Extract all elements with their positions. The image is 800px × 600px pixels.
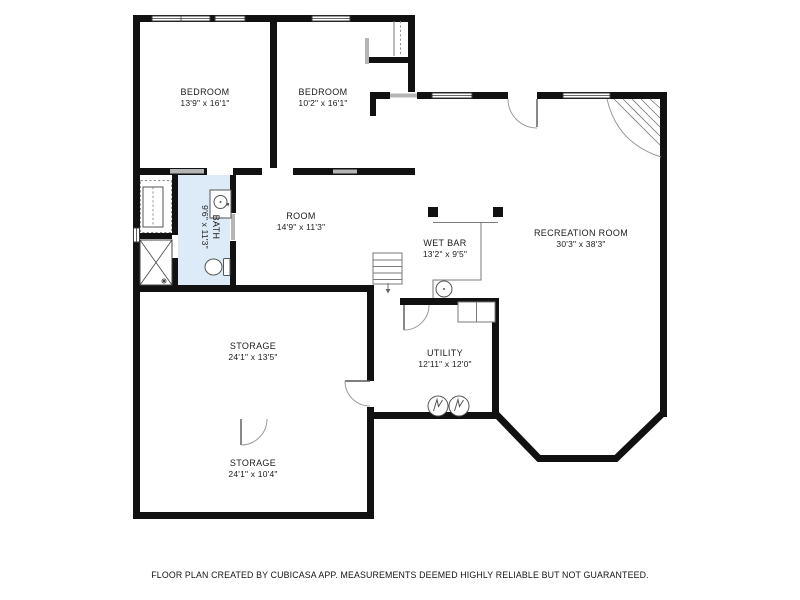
room-label-bedroom-2: BEDROOM 10'2" x 16'1" xyxy=(298,87,347,108)
svg-text:BEDROOM: BEDROOM xyxy=(181,87,230,97)
room-label-room: ROOM 14'9" x 11'3" xyxy=(277,211,326,232)
svg-text:24'1" x 13'5": 24'1" x 13'5" xyxy=(228,352,277,362)
closet-icon xyxy=(394,21,401,56)
room-label-bedroom-1: BEDROOM 13'9" x 16'1" xyxy=(180,87,229,108)
window xyxy=(215,16,245,21)
room-label-storage-2: STORAGE 24'1" x 10'4" xyxy=(228,458,277,479)
svg-text:BEDROOM: BEDROOM xyxy=(299,87,348,97)
svg-text:12'11" x 12'0": 12'11" x 12'0" xyxy=(418,359,472,369)
threshold xyxy=(390,94,417,98)
svg-text:13'9" x 16'1": 13'9" x 16'1" xyxy=(180,98,229,108)
door xyxy=(241,419,267,445)
threshold xyxy=(170,169,204,174)
door xyxy=(404,305,429,330)
svg-text:STORAGE: STORAGE xyxy=(230,341,276,351)
floor-plan-canvas: BEDROOM 13'9" x 16'1" BEDROOM 10'2" x 16… xyxy=(0,0,800,600)
room-label-utility: UTILITY 12'11" x 12'0" xyxy=(418,348,472,369)
water-heater-icon xyxy=(428,396,448,416)
window xyxy=(312,16,350,21)
svg-text:UTILITY: UTILITY xyxy=(427,348,463,358)
svg-text:10'2" x 16'1": 10'2" x 16'1" xyxy=(298,98,347,108)
svg-text:14'9" x 11'3": 14'9" x 11'3" xyxy=(277,222,326,232)
floor-plan-page: BEDROOM 13'9" x 16'1" BEDROOM 10'2" x 16… xyxy=(0,0,800,600)
closet-icon xyxy=(141,181,172,233)
window xyxy=(432,93,472,98)
window xyxy=(563,93,610,98)
footer-disclaimer: FLOOR PLAN CREATED BY CUBICASA APP. MEAS… xyxy=(151,570,648,580)
svg-text:24'1" x 10'4": 24'1" x 10'4" xyxy=(228,469,277,479)
counter xyxy=(458,302,495,322)
bay-wall xyxy=(496,413,663,459)
window xyxy=(134,228,140,242)
closet-sliding-door xyxy=(365,38,369,64)
room-label-storage-1: STORAGE 24'1" x 13'5" xyxy=(228,341,277,362)
column xyxy=(493,207,503,217)
svg-text:30'3" x 38'3": 30'3" x 38'3" xyxy=(556,239,605,249)
room-labels: BEDROOM 13'9" x 16'1" BEDROOM 10'2" x 16… xyxy=(180,87,628,479)
pocket-door xyxy=(231,214,235,240)
stairs-icon xyxy=(373,253,402,294)
door xyxy=(508,99,537,128)
water-heater-icon xyxy=(449,396,469,416)
room-label-wet-bar: WET BAR 13'2" x 9'5" xyxy=(423,238,467,259)
svg-text:WET BAR: WET BAR xyxy=(423,238,466,248)
door xyxy=(345,381,370,406)
svg-text:STORAGE: STORAGE xyxy=(230,458,276,468)
window xyxy=(152,16,210,21)
sink-icon xyxy=(436,281,452,297)
room-label-recreation-room: RECREATION ROOM 30'3" x 38'3" xyxy=(534,228,628,249)
sliding-door xyxy=(333,170,357,174)
svg-text:ROOM: ROOM xyxy=(286,211,315,221)
svg-text:BATH: BATH xyxy=(211,215,221,240)
toilet-icon xyxy=(205,259,230,276)
svg-text:RECREATION ROOM: RECREATION ROOM xyxy=(534,228,628,238)
column xyxy=(428,207,438,217)
svg-text:13'2" x 9'5": 13'2" x 9'5" xyxy=(423,249,467,259)
svg-text:9'6" x 11'3": 9'6" x 11'3" xyxy=(200,205,210,249)
shower-icon xyxy=(140,240,172,285)
stairs-icon xyxy=(607,99,661,157)
